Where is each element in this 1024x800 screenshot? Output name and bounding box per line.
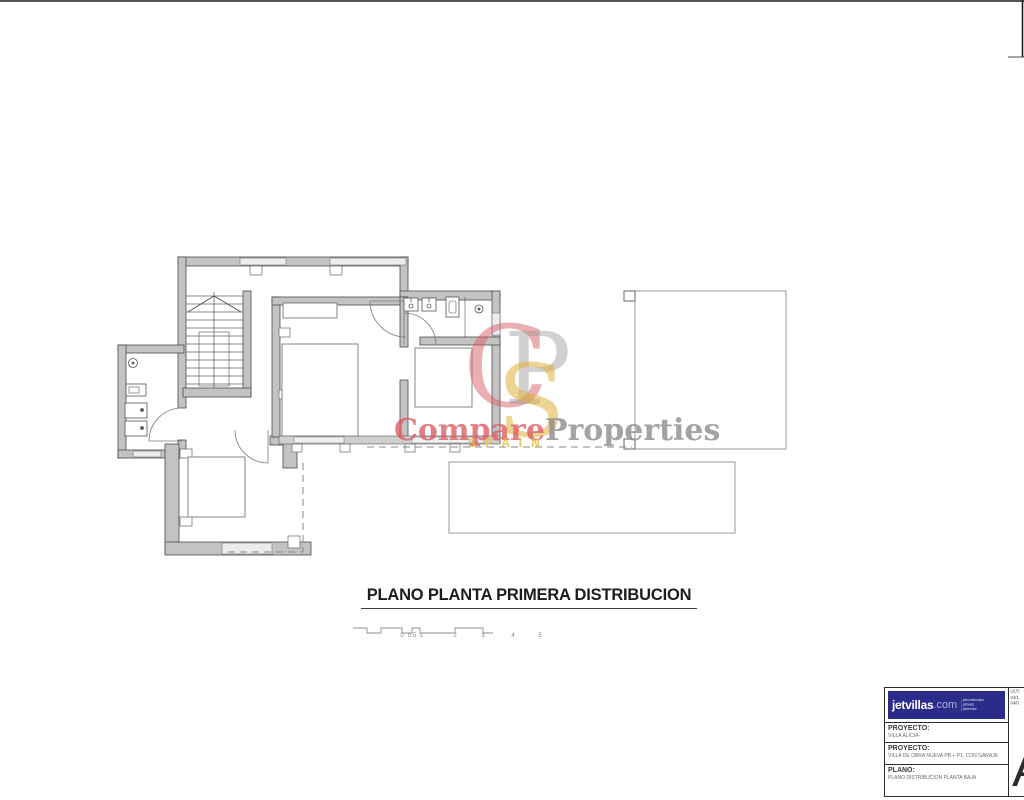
logo-tld-text: .com [933,699,957,711]
scale-label: 5 [538,633,541,639]
revision-lines: ULTI 24/1 04/0 [1009,688,1024,707]
logo-row: jetvillas.com jetconstruction jetsales j… [885,688,1008,723]
furniture [188,303,472,517]
scale-label: 1 [419,633,422,639]
floorplan-sheet: { "plan": { "title": "PLANO PLANTA PRIME… [0,0,1024,800]
project-row-2: PROYECTO: VILLA DE OBRA NUEVA PB + P1, C… [885,743,1008,765]
project-value: VILLA DE OBRA NUEVA PB + P1, CON GARAJE [888,753,1005,760]
title-block: jetvillas.com jetconstruction jetsales j… [884,687,1024,797]
sheet-border [0,0,1024,57]
plano-label: PLANO: [888,767,1005,775]
logo-services: jetconstruction jetsales jetservice [961,698,984,711]
left-bathroom-fixtures [125,359,147,437]
project-label: PROYECTO: [888,745,1005,753]
floorplan-canvas [0,0,1024,800]
scale-label: 3 [481,633,484,639]
plan-title-wrap: PLANO PLANTA PRIMERA DISTRIBUCION [354,586,704,609]
window-wall [279,436,500,444]
revision-line: 04/0 [1010,701,1024,707]
project-row-1: PROYECTO: VILLA ALICIA- [885,723,1008,743]
scale-label: 0 [400,633,403,639]
scale-label: 4 [511,633,514,639]
scale-label: 0.5 [408,633,416,639]
sheet-size-letter: A [1012,744,1024,794]
title-block-main: jetvillas.com jetconstruction jetsales j… [885,688,1009,796]
bathroom-fixtures [404,297,483,337]
stairs [186,292,243,388]
plano-value: PLANO DISTRIBUCION PLANTA BAJA [888,775,1005,782]
bed-main [282,344,358,436]
scale-bar-steps [353,628,493,633]
bed-right [415,348,472,407]
wardrobe [283,303,337,318]
project-label: PROYECTO: [888,725,1005,733]
plan-title: PLANO PLANTA PRIMERA DISTRIBUCION [361,586,698,609]
logo-service-line: jetservice [963,707,984,711]
logo-brand-text: jetvillas [892,698,933,712]
scale-label: 2 [453,633,456,639]
project-value: VILLA ALICIA- [888,733,1005,740]
plano-row: PLANO: PLANO DISTRIBUCION PLANTA BAJA [885,765,1008,796]
bed-lower [188,457,245,517]
jetvillas-logo: jetvillas.com jetconstruction jetsales j… [888,691,1005,719]
